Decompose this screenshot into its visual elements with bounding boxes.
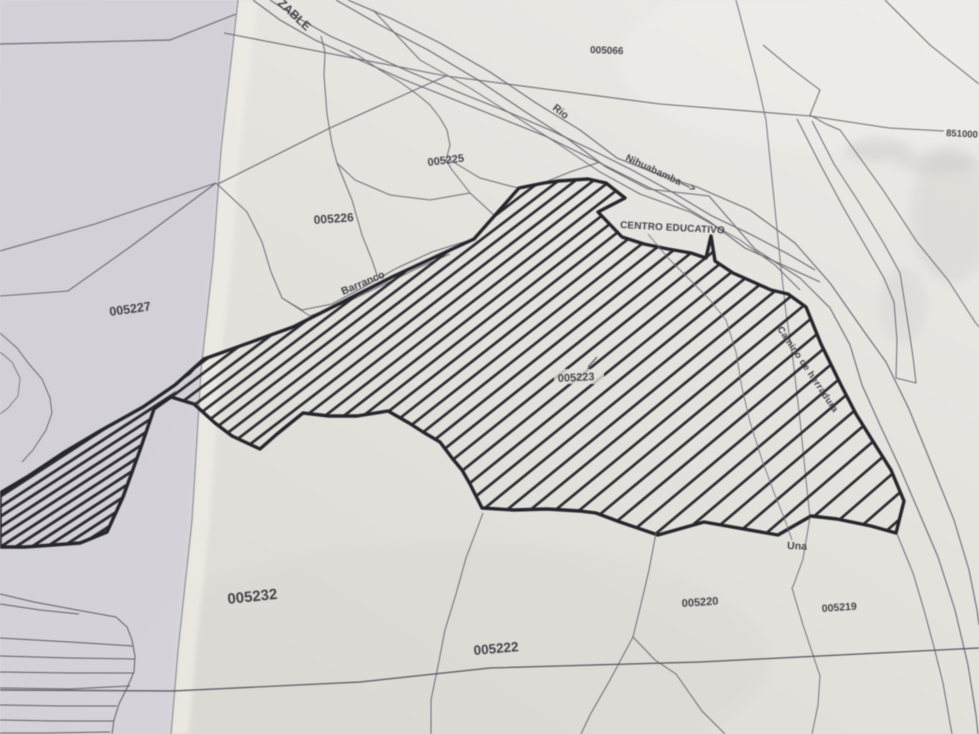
svg-text:851000: 851000	[946, 128, 978, 141]
svg-text:005226: 005226	[313, 210, 354, 227]
svg-text:005219: 005219	[821, 601, 857, 615]
svg-text:005066: 005066	[590, 45, 624, 57]
svg-text:Una: Una	[787, 540, 807, 553]
svg-text:005223: 005223	[558, 371, 595, 385]
svg-text:005220: 005220	[681, 595, 718, 610]
